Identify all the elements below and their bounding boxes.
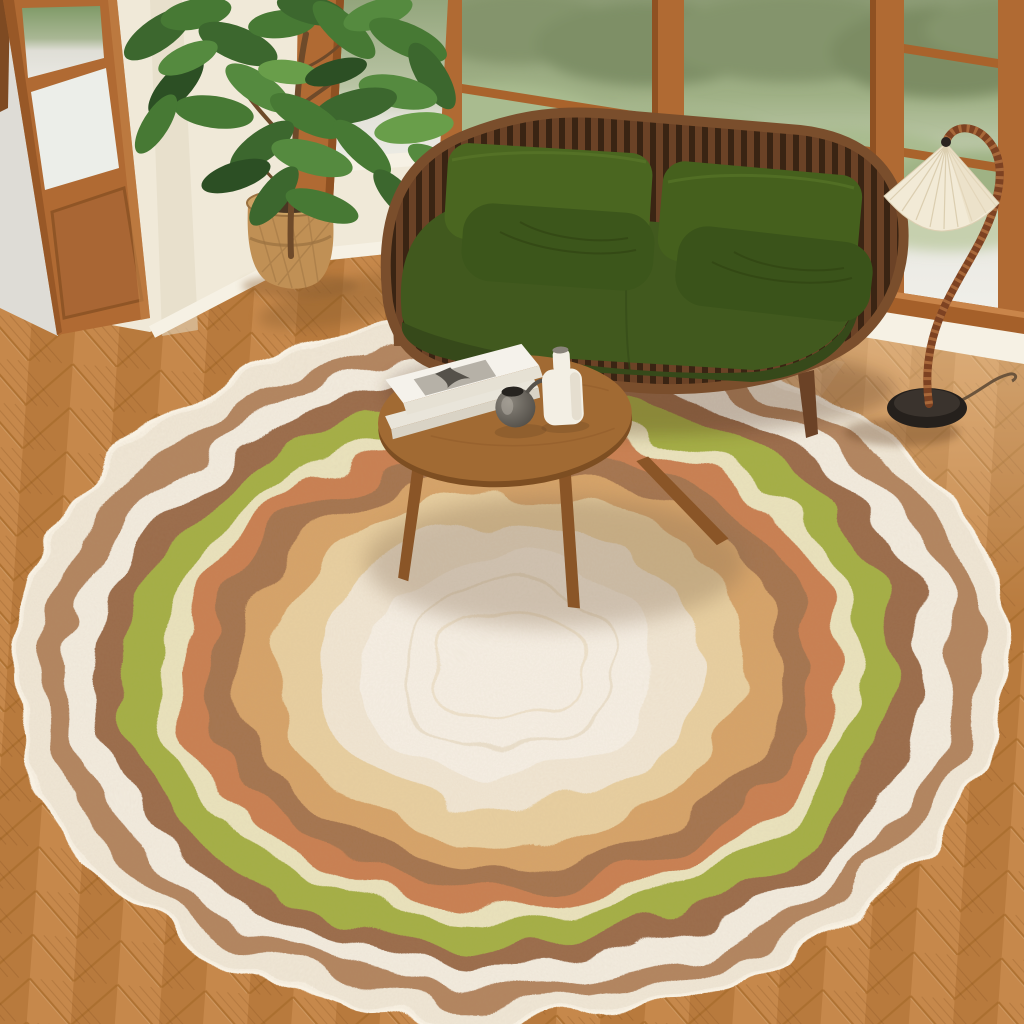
scene-svg [0,0,1024,1024]
lamp-finial [941,137,951,147]
door-lower-panel [52,188,142,318]
living-room-photo [0,0,1024,1024]
table-shadow [365,496,745,628]
lumbar-pillow-left [460,201,657,292]
